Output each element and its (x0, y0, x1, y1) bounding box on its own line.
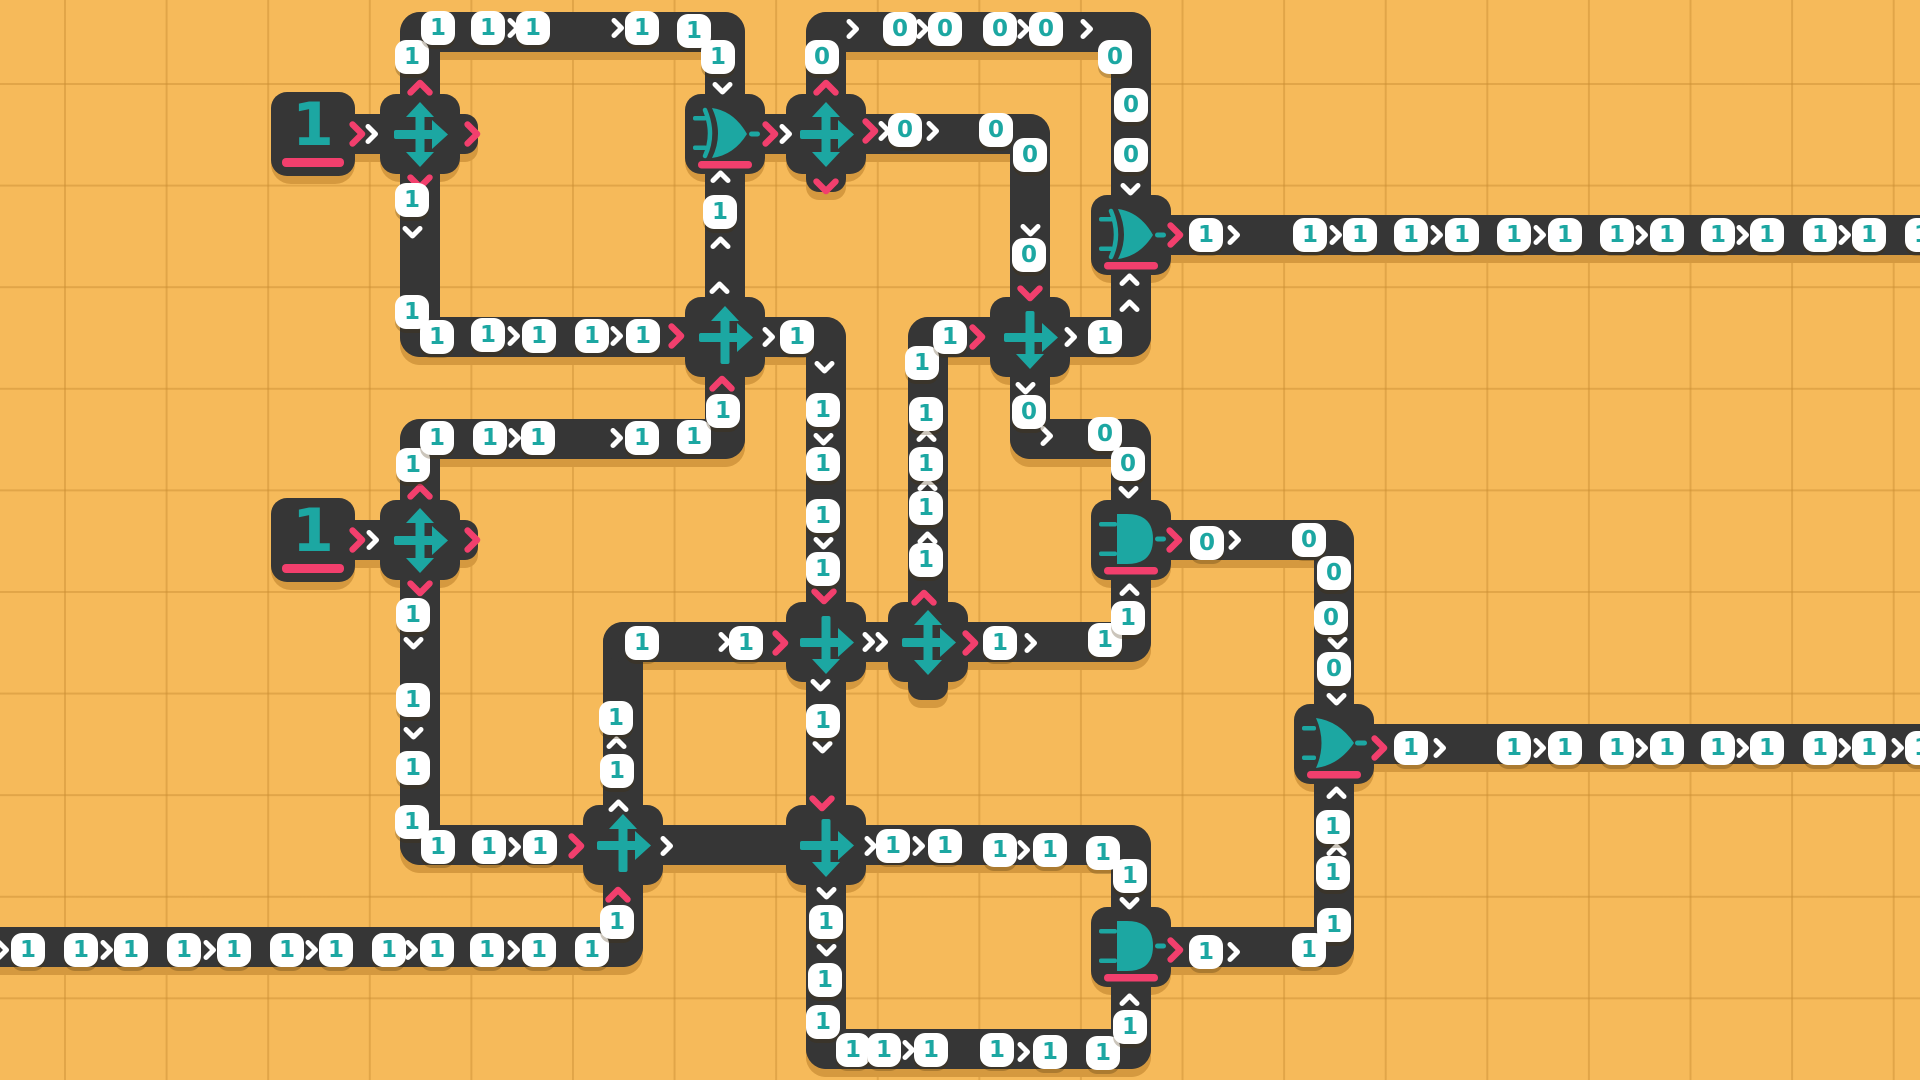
bit-pill: 1 (1292, 933, 1326, 967)
bit-pill: 1 (836, 1033, 870, 1067)
bit-pill: 1 (217, 933, 251, 967)
bit-pill: 1 (909, 543, 943, 577)
bit-pill: 0 (1317, 652, 1351, 686)
bit-pill: 1 (806, 393, 840, 427)
bit-pill: 0 (883, 12, 917, 46)
bit-pill: 0 (1114, 138, 1148, 172)
tile-and-gate[interactable] (1091, 907, 1171, 987)
tile-wire-crossing[interactable] (786, 602, 866, 682)
splitter-arrows-icon (888, 602, 968, 686)
bit-pill: 1 (396, 751, 430, 785)
splitter-arrows-icon (380, 94, 460, 178)
tile-or-gate[interactable] (1294, 704, 1374, 784)
bit-pill: 0 (979, 113, 1013, 147)
bit-pill: 0 (928, 12, 962, 46)
bit-pill: 1 (319, 933, 353, 967)
bit-pill: 1 (1548, 731, 1582, 765)
bit-pill: 1 (809, 905, 843, 939)
bit-pill: 1 (472, 830, 506, 864)
tile-wire-crossing[interactable] (583, 805, 663, 885)
bit-pill: 1 (420, 320, 454, 354)
circuit-board: 1 1 (0, 0, 1920, 1080)
bit-pill: 1 (1394, 731, 1428, 765)
bit-pill: 0 (1292, 523, 1326, 557)
bit-pill: 0 (1012, 395, 1046, 429)
bit-pill: 0 (1111, 447, 1145, 481)
bit-pill: 1 (600, 754, 634, 788)
source-value-label: 1 (271, 94, 355, 156)
bit-pill: 1 (1189, 218, 1223, 252)
bit-pill: 1 (867, 1033, 901, 1067)
tile-wire-crossing[interactable] (990, 297, 1070, 377)
bit-pill: 1 (396, 683, 430, 717)
bit-pill: 1 (1088, 320, 1122, 354)
bit-pill: 1 (471, 11, 505, 45)
bit-pill: 1 (1111, 601, 1145, 635)
bit-pill: 1 (420, 421, 454, 455)
bit-pill: 0 (1012, 238, 1046, 272)
bit-pill: 1 (625, 626, 659, 660)
bit-pill: 1 (1905, 218, 1920, 252)
bit-pill: 1 (1750, 218, 1784, 252)
and-gate-icon (1091, 500, 1171, 584)
bit-pill: 0 (1088, 417, 1122, 451)
and-gate-icon (1091, 907, 1171, 991)
bit-pill: 1 (905, 346, 939, 380)
bit-pill: 1 (806, 704, 840, 738)
bit-pill: 0 (1013, 138, 1047, 172)
bit-pill: 1 (1189, 935, 1223, 969)
bit-pill: 1 (395, 40, 429, 74)
bit-pill: 1 (1394, 218, 1428, 252)
tile-splitter[interactable] (786, 94, 866, 174)
tile-splitter[interactable] (888, 602, 968, 682)
bit-pill: 1 (64, 933, 98, 967)
bit-pill: 1 (395, 183, 429, 217)
bit-pill: 1 (1750, 731, 1784, 765)
bit-pill: 1 (516, 11, 550, 45)
tile-splitter[interactable] (380, 500, 460, 580)
bit-pill: 0 (888, 113, 922, 147)
bit-pill: 1 (808, 963, 842, 997)
bit-pill: 1 (909, 491, 943, 525)
bit-pill: 1 (983, 833, 1017, 867)
bit-pill: 1 (1113, 1010, 1147, 1044)
bit-pill: 1 (1316, 856, 1350, 890)
bit-pill: 1 (1548, 218, 1582, 252)
bit-pill: 0 (1029, 12, 1063, 46)
bit-pill: 1 (677, 420, 711, 454)
bit-pill: 1 (1600, 731, 1634, 765)
bit-pill: 1 (876, 829, 910, 863)
bit-pill: 1 (729, 626, 763, 660)
bit-pill: 1 (1497, 731, 1531, 765)
bit-pill: 1 (701, 40, 735, 74)
bit-pill: 1 (114, 933, 148, 967)
bit-pill: 1 (1803, 731, 1837, 765)
splitter-arrows-icon (380, 500, 460, 584)
bit-pill: 1 (1497, 218, 1531, 252)
xor-gate-icon (1091, 195, 1171, 279)
bit-pill: 1 (421, 11, 455, 45)
bit-pill: 1 (983, 626, 1017, 660)
bit-pill: 1 (625, 11, 659, 45)
bit-pill: 1 (1905, 731, 1920, 765)
bit-pill: 0 (1317, 556, 1351, 590)
crossing-arrows-icon (990, 297, 1070, 381)
bit-pill: 1 (1445, 218, 1479, 252)
bit-pill: 1 (909, 397, 943, 431)
bit-pill: 1 (928, 829, 962, 863)
bit-pill: 0 (805, 40, 839, 74)
crossing-arrows-icon (786, 805, 866, 889)
bit-pill: 0 (1114, 88, 1148, 122)
bit-pill: 1 (1852, 731, 1886, 765)
tile-input-source[interactable]: 1 (271, 92, 355, 176)
bit-pill: 1 (521, 421, 555, 455)
crossing-arrows-icon (583, 805, 663, 889)
source-underline (282, 564, 344, 573)
tile-and-gate[interactable] (1091, 500, 1171, 580)
bit-pill: 0 (1098, 40, 1132, 74)
tile-wire-crossing[interactable] (685, 297, 765, 377)
bit-pill: 1 (11, 933, 45, 967)
bit-pill: 1 (575, 933, 609, 967)
bit-pill: 1 (780, 320, 814, 354)
bit-pill: 1 (396, 598, 430, 632)
tile-xor-gate[interactable] (685, 94, 765, 174)
bit-pill: 1 (420, 933, 454, 967)
bit-pill: 1 (1343, 218, 1377, 252)
bit-pill: 1 (473, 421, 507, 455)
bit-pill: 1 (1701, 218, 1735, 252)
bit-pill: 1 (600, 905, 634, 939)
bit-pill: 1 (806, 1005, 840, 1039)
bit-pill: 1 (421, 830, 455, 864)
bit-pill: 1 (270, 933, 304, 967)
bit-pill: 1 (1701, 731, 1735, 765)
splitter-arrows-icon (786, 94, 866, 178)
bit-pill: 1 (1316, 810, 1350, 844)
tile-wire-crossing[interactable] (786, 805, 866, 885)
bit-pill: 1 (1650, 218, 1684, 252)
xor-gate-icon (685, 94, 765, 178)
tile-splitter[interactable] (380, 94, 460, 174)
bit-pill: 1 (522, 319, 556, 353)
bit-pill: 1 (575, 319, 609, 353)
bit-pill: 1 (625, 421, 659, 455)
bit-pill: 0 (983, 12, 1017, 46)
bit-pill: 1 (1852, 218, 1886, 252)
source-underline (282, 158, 344, 167)
source-value-label: 1 (271, 500, 355, 562)
bit-pill: 1 (933, 320, 967, 354)
bit-pill: 0 (1314, 601, 1348, 635)
crossing-arrows-icon (685, 297, 765, 381)
bit-pill: 1 (909, 447, 943, 481)
bit-pill: 1 (914, 1033, 948, 1067)
bit-pill: 1 (470, 933, 504, 967)
bit-pill: 1 (806, 447, 840, 481)
bit-pill: 1 (1650, 731, 1684, 765)
bit-pill: 1 (599, 701, 633, 735)
bit-pill: 1 (806, 499, 840, 533)
bit-pill: 1 (806, 552, 840, 586)
bit-pill: 1 (1803, 218, 1837, 252)
tile-xor-gate[interactable] (1091, 195, 1171, 275)
bit-pill: 1 (471, 318, 505, 352)
bit-pill: 1 (522, 933, 556, 967)
crossing-arrows-icon (786, 602, 866, 686)
bit-pill: 0 (1190, 526, 1224, 560)
bit-pill: 1 (706, 394, 740, 428)
bit-pill: 1 (372, 933, 406, 967)
or-gate-icon (1294, 704, 1374, 788)
bit-pill: 1 (1033, 833, 1067, 867)
bit-pill: 1 (1086, 1036, 1120, 1070)
bit-pill: 1 (523, 830, 557, 864)
bit-pill: 1 (626, 319, 660, 353)
bit-pill: 1 (703, 195, 737, 229)
tile-input-source[interactable]: 1 (271, 498, 355, 582)
bit-pill: 1 (980, 1033, 1014, 1067)
bit-pill: 1 (1033, 1035, 1067, 1069)
bit-pill: 1 (1293, 218, 1327, 252)
bit-pill: 1 (1600, 218, 1634, 252)
bit-pill: 1 (1113, 859, 1147, 893)
bit-pill: 1 (167, 933, 201, 967)
